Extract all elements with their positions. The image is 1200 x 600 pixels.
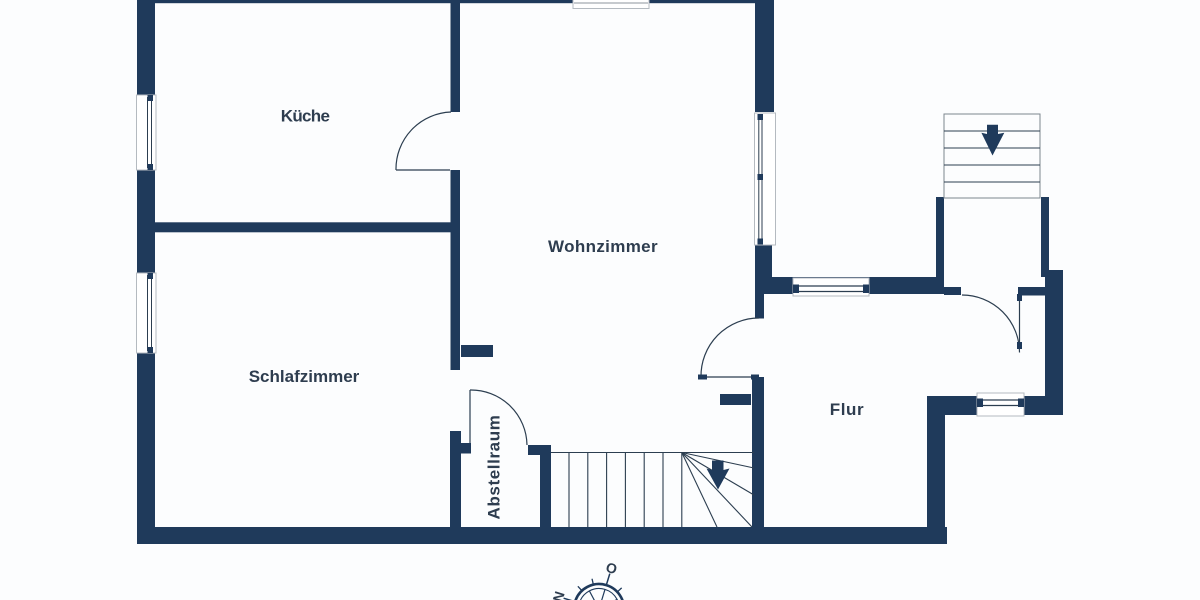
- svg-text:Küche: Küche: [281, 107, 330, 126]
- svg-text:Schlafzimmer: Schlafzimmer: [249, 367, 360, 386]
- svg-text:Flur: Flur: [830, 400, 865, 419]
- svg-text:Abstellraum: Abstellraum: [484, 415, 503, 520]
- svg-text:Wohnzimmer: Wohnzimmer: [548, 237, 658, 256]
